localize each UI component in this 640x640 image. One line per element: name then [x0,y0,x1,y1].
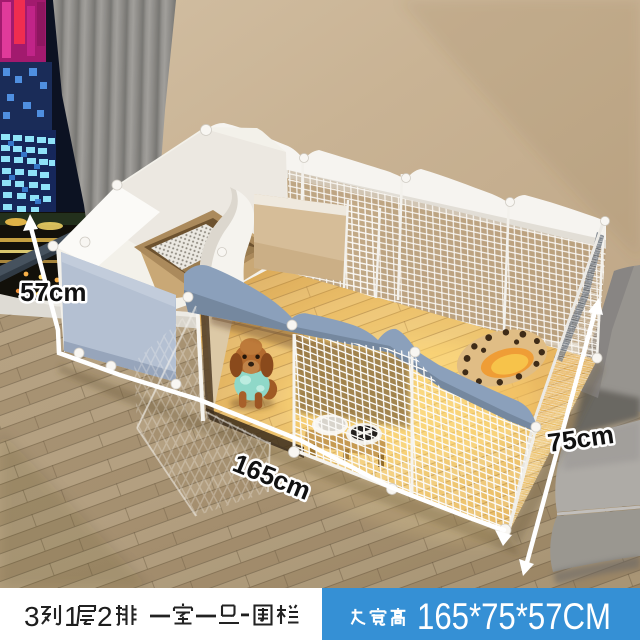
svg-text:2: 2 [97,601,113,632]
svg-text:1: 1 [64,601,80,632]
svg-text:57cm: 57cm [20,277,87,307]
svg-text:165*75*57CM: 165*75*57CM [417,596,611,637]
svg-text:3: 3 [24,601,40,632]
